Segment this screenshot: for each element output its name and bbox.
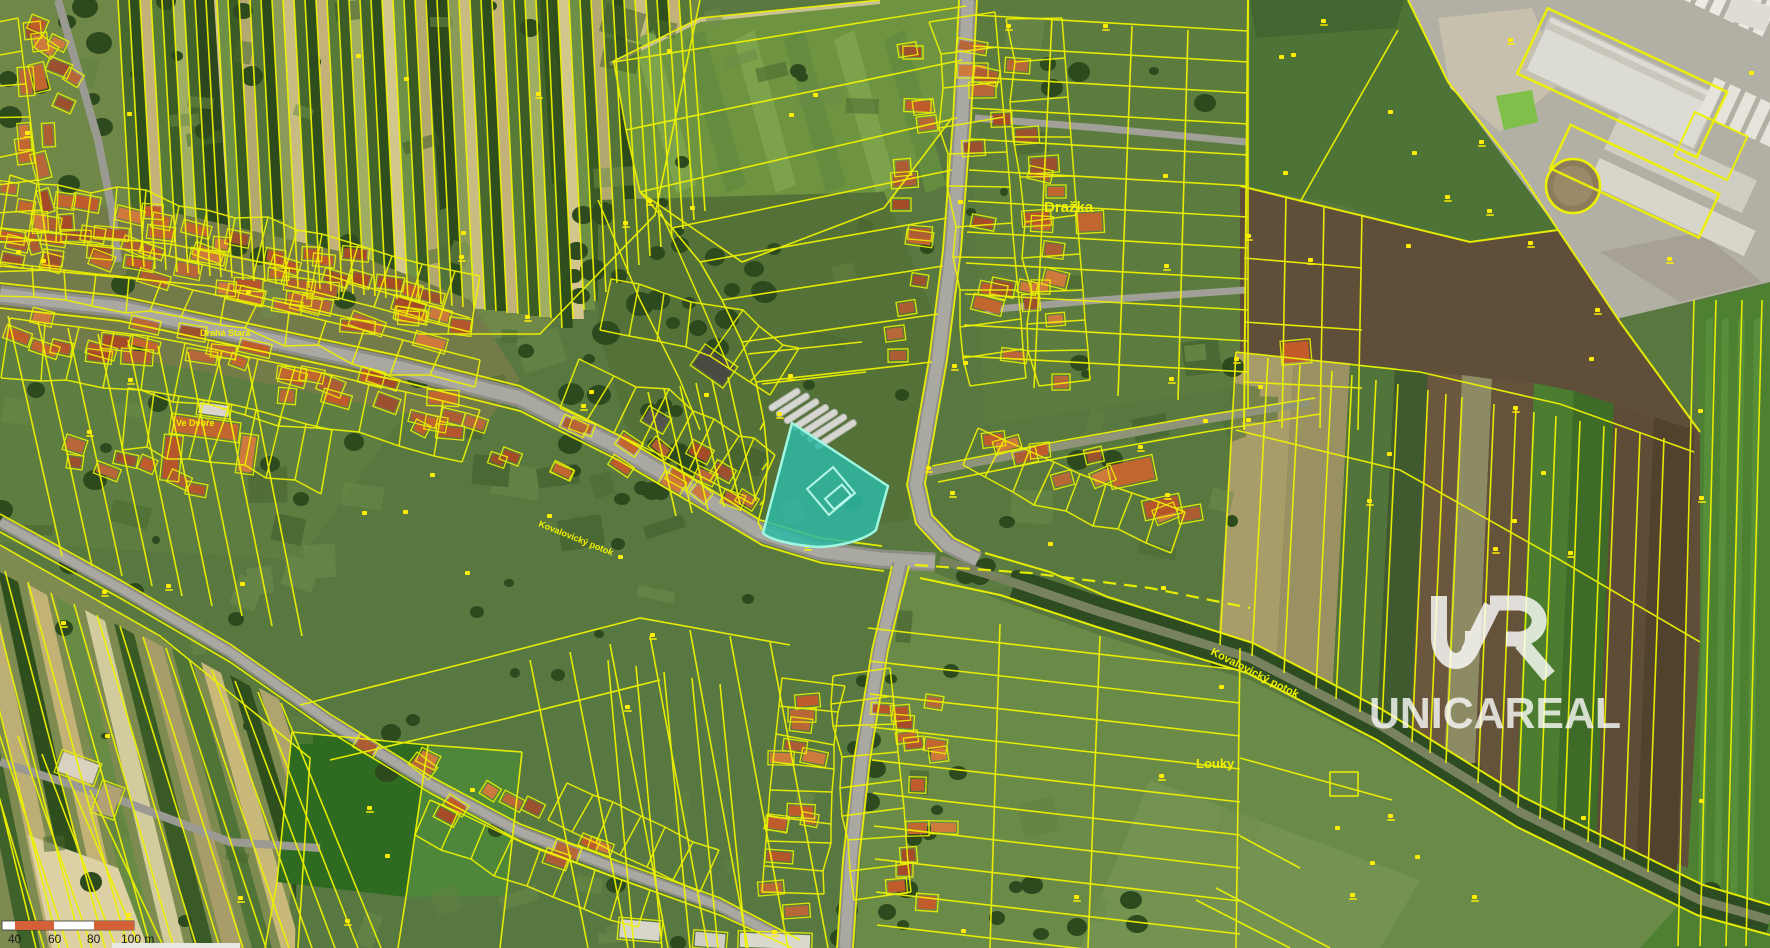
svg-text:60: 60 (48, 932, 62, 946)
svg-text:Louky: Louky (1196, 756, 1235, 771)
svg-text:80: 80 (87, 932, 101, 946)
svg-text:Dražka: Dražka (1044, 199, 1094, 216)
svg-text:UNICAREAL: UNICAREAL (1369, 689, 1621, 738)
svg-text:40: 40 (8, 932, 22, 946)
svg-text:Drahá Stará: Drahá Stará (200, 328, 252, 338)
svg-text:Ve Dvoře: Ve Dvoře (176, 418, 215, 428)
